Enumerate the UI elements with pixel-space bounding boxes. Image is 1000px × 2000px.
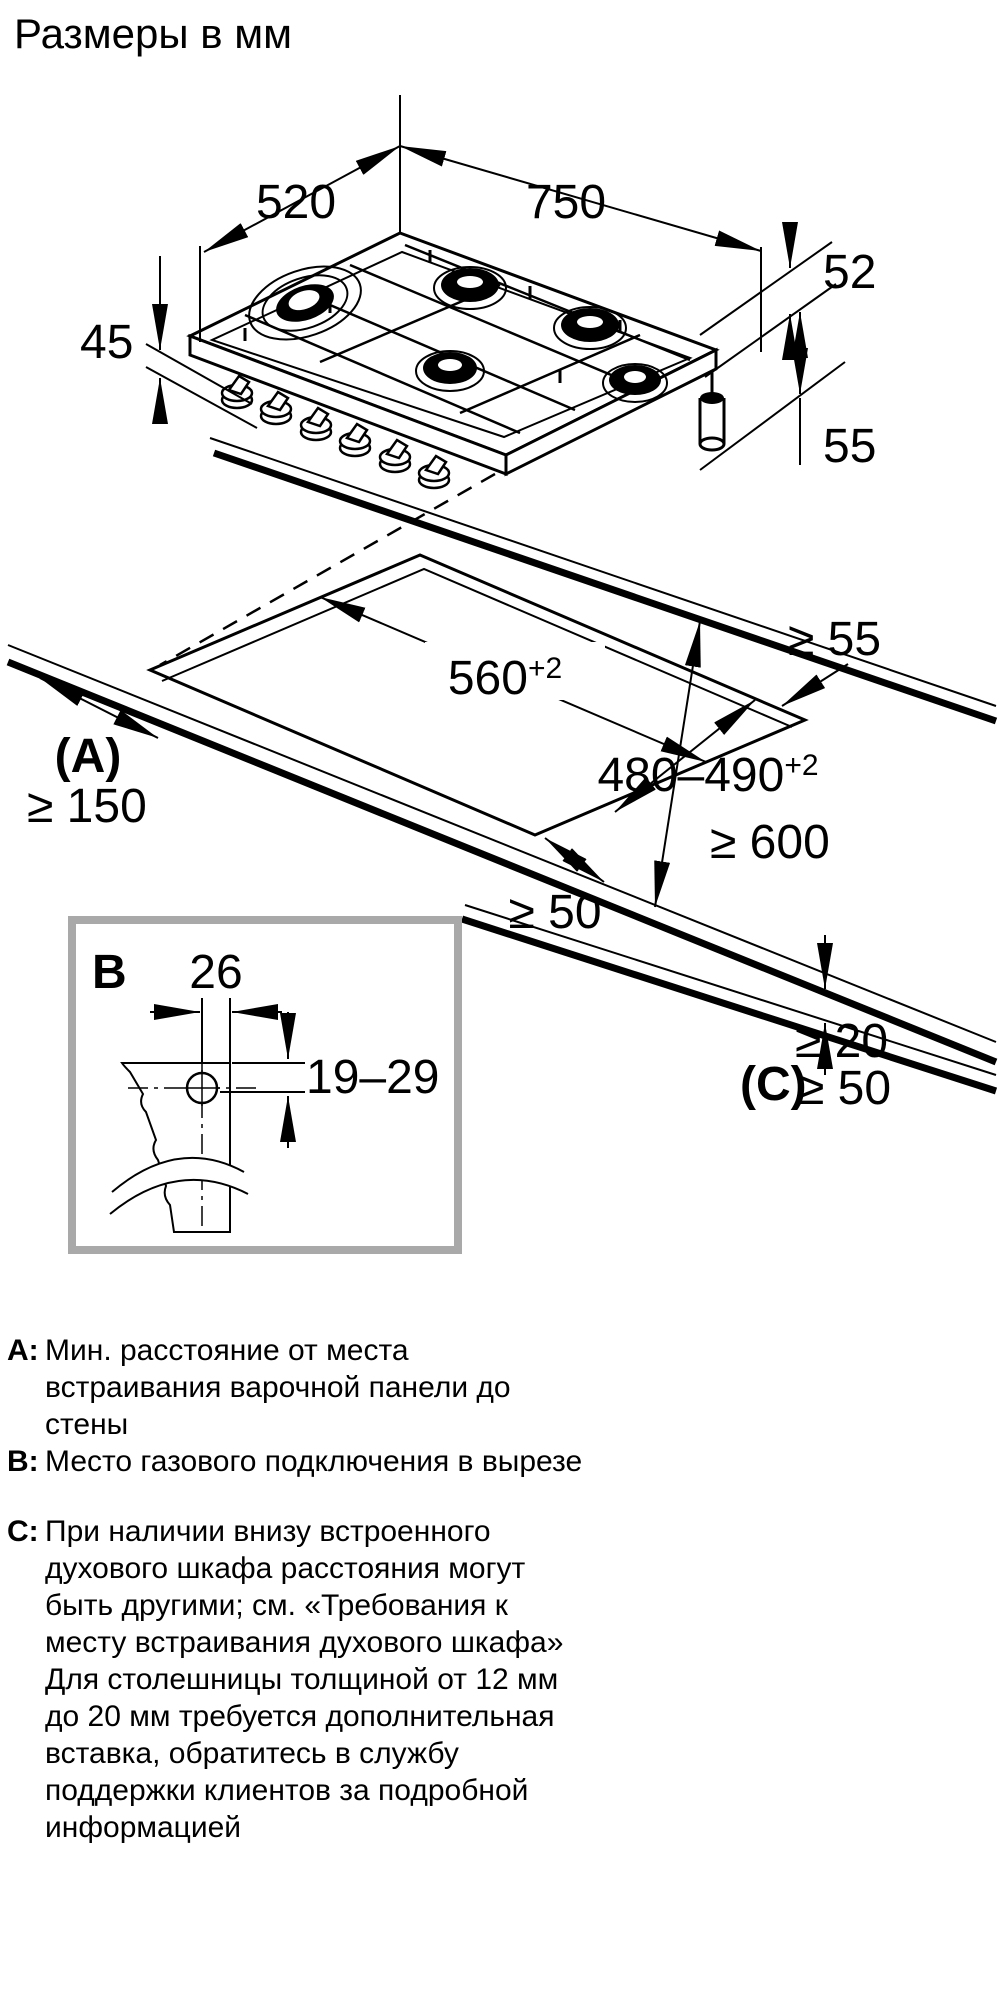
hob-drawing <box>190 233 724 488</box>
legend-text-c: При наличии внизу встроенного духового ш… <box>45 1513 563 1846</box>
gas-connection-pipe <box>700 371 724 450</box>
dim-front-gap-label: ≥ 50 <box>508 886 601 939</box>
installation-dimension-diagram: 560+2 480–490+2 ≥ 55 (A) ≥ 150 ≥ 600 ≥ 5… <box>0 0 1000 1330</box>
dim-hob-depth-label: 520 <box>256 176 336 229</box>
dim-hob-left-label: 45 <box>80 316 133 369</box>
lower-shelf-line-thick <box>462 919 996 1091</box>
dim-side-gap-label: ≥ 150 <box>27 780 147 833</box>
legend-item-b: B: Место газового подключения в вырезе <box>7 1443 982 1480</box>
dim-a-ref-label: (A) <box>55 730 122 783</box>
dim-hob-height-label: 55 <box>823 420 876 473</box>
legend-key-c: C: <box>7 1513 45 1550</box>
legend-item-a: A: Мин. расстояние от места встраивания … <box>7 1332 982 1443</box>
legend: A: Мин. расстояние от места встраивания … <box>7 1332 982 1846</box>
dim-rear-gap-label: ≥ 55 <box>788 613 881 666</box>
extension-line <box>700 242 832 335</box>
side-gap-dim-line <box>40 678 158 738</box>
dim-worktop-depth-label: ≥ 600 <box>710 816 830 869</box>
legend-text-a: Мин. расстояние от места встраивания вар… <box>45 1332 511 1443</box>
dim-hob-edge-label: 52 <box>823 246 876 299</box>
dimension-diagram-page: { "title": "Размеры в мм", "dims": { "ho… <box>0 0 1000 2000</box>
dim-hole-offset-label: 26 <box>189 946 242 999</box>
dim-oven-gap-top-label: ≥ 20 <box>795 1015 888 1068</box>
legend-item-c: C: При наличии внизу встроенного духовог… <box>7 1513 982 1846</box>
dim-hob-width-label: 750 <box>526 176 606 229</box>
legend-key-a: A: <box>7 1332 45 1369</box>
extension-line <box>705 284 836 377</box>
dim-cutout-depth-label: 480–490+2 <box>597 749 818 802</box>
rear-gap-leader <box>782 664 848 706</box>
detail-b-ref-label: B <box>92 946 127 999</box>
front-gap-dim-line <box>545 838 604 882</box>
legend-key-b: B: <box>7 1443 45 1480</box>
legend-text-b: Место газового подключения в вырезе <box>45 1443 582 1480</box>
dim-oven-gap-bottom-label: ≥ 50 <box>798 1062 891 1115</box>
dim-hole-depth-label: 19–29 <box>306 1051 439 1104</box>
detail-b-inset: B 26 19–29 <box>72 920 458 1250</box>
